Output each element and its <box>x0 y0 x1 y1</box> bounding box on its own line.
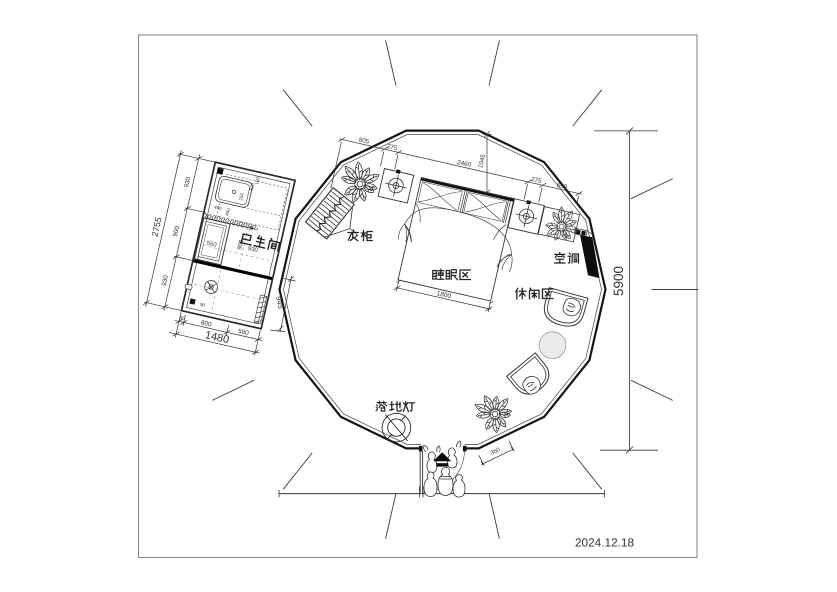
svg-text:1045: 1045 <box>477 153 487 169</box>
svg-text:580: 580 <box>237 328 249 337</box>
svg-text:2460: 2460 <box>457 159 473 169</box>
svg-text:945: 945 <box>274 295 286 309</box>
svg-text:5900: 5900 <box>611 266 626 296</box>
svg-text:900: 900 <box>236 239 245 251</box>
svg-text:2024.12.18: 2024.12.18 <box>575 536 634 550</box>
svg-text:800: 800 <box>200 319 212 328</box>
svg-text:275: 275 <box>530 176 542 185</box>
svg-text:100: 100 <box>254 176 261 185</box>
svg-text:550: 550 <box>206 240 218 249</box>
svg-text:360: 360 <box>489 446 501 457</box>
svg-text:930: 930 <box>161 274 170 286</box>
svg-text:690: 690 <box>556 182 568 191</box>
svg-text:275: 275 <box>386 143 398 152</box>
svg-text:930: 930 <box>183 176 192 188</box>
svg-text:1480: 1480 <box>204 329 231 346</box>
svg-text:90: 90 <box>199 302 206 308</box>
svg-text:400: 400 <box>214 204 223 211</box>
svg-text:805: 805 <box>358 137 370 146</box>
svg-text:90: 90 <box>179 315 186 322</box>
svg-text:900: 900 <box>172 225 181 237</box>
svg-text:2755: 2755 <box>150 216 164 237</box>
svg-text:460: 460 <box>224 207 231 216</box>
